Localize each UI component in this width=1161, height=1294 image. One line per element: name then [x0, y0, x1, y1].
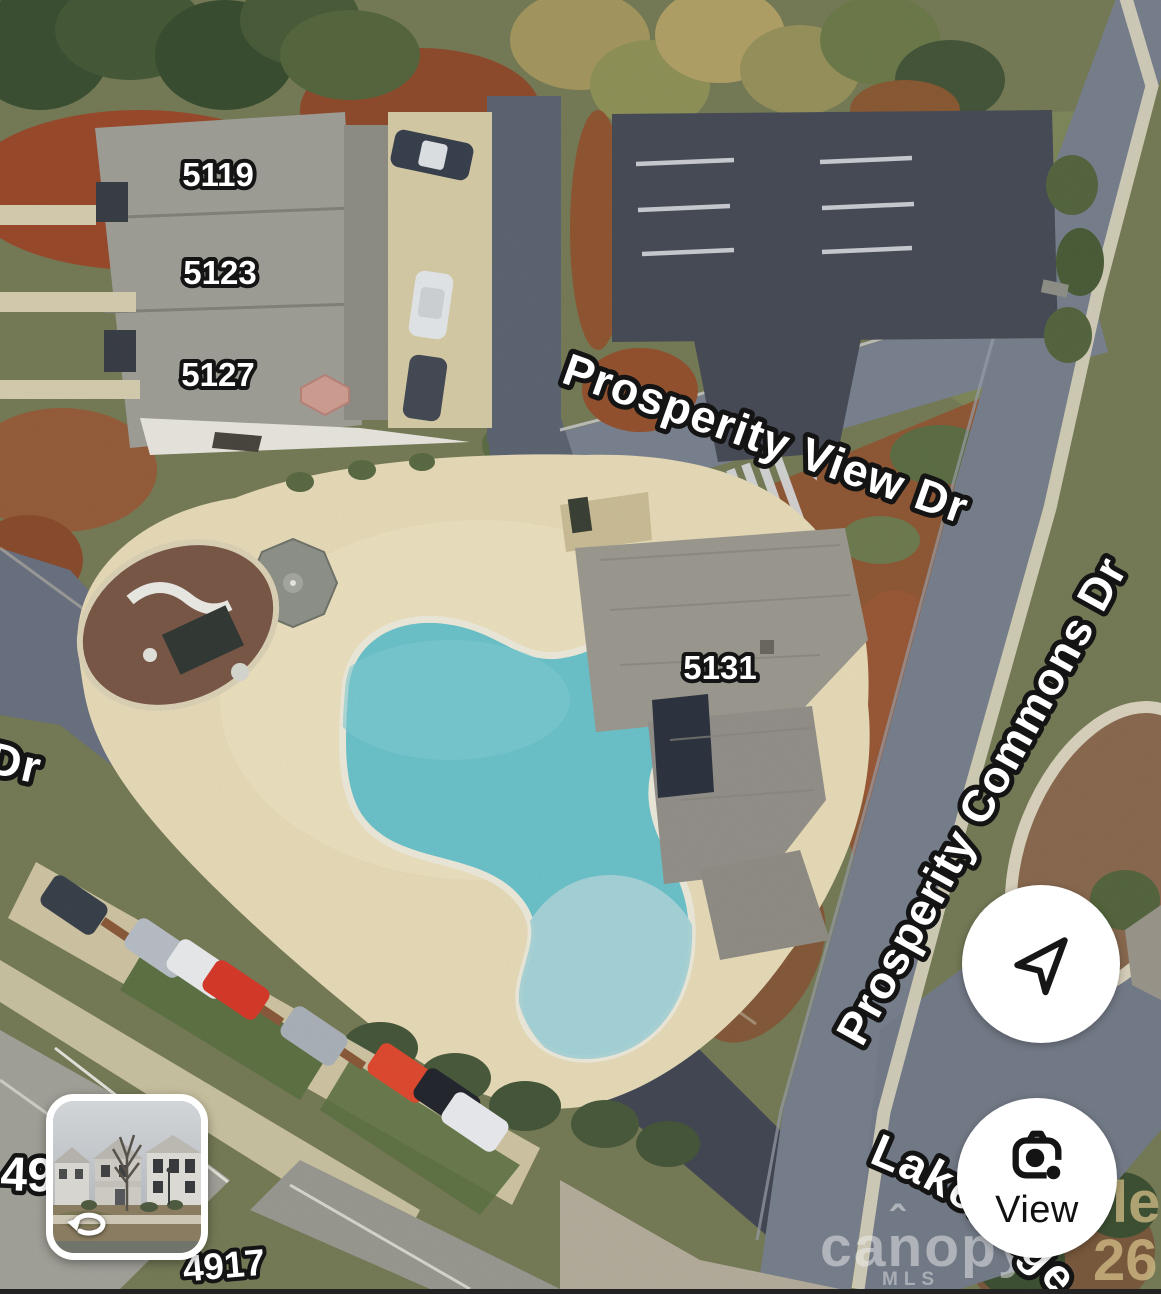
building-label-5119: 5119 — [182, 156, 254, 193]
rotate-icon — [63, 1208, 111, 1245]
location-arrow-icon — [1005, 928, 1077, 1000]
watermark-sub: MLS — [882, 1269, 940, 1289]
watermark-caret: ˆ — [890, 1197, 906, 1246]
building-label-5131: 5131 — [683, 649, 756, 686]
imagery-fragment-26: 26 — [1093, 1228, 1158, 1289]
camera-lens-icon — [1006, 1125, 1068, 1187]
building-label-5127: 5127 — [181, 356, 254, 393]
streetview-thumbnail[interactable] — [46, 1094, 208, 1260]
street-view-button[interactable]: View — [957, 1098, 1117, 1258]
view-button-label: View — [995, 1189, 1079, 1232]
imagery-fragment-le: le — [1112, 1170, 1160, 1235]
building-label-5123: 5123 — [183, 254, 256, 291]
locate-button[interactable] — [962, 885, 1120, 1043]
map-screen: { "map": { "street_labels": { "view_dr":… — [0, 0, 1161, 1289]
